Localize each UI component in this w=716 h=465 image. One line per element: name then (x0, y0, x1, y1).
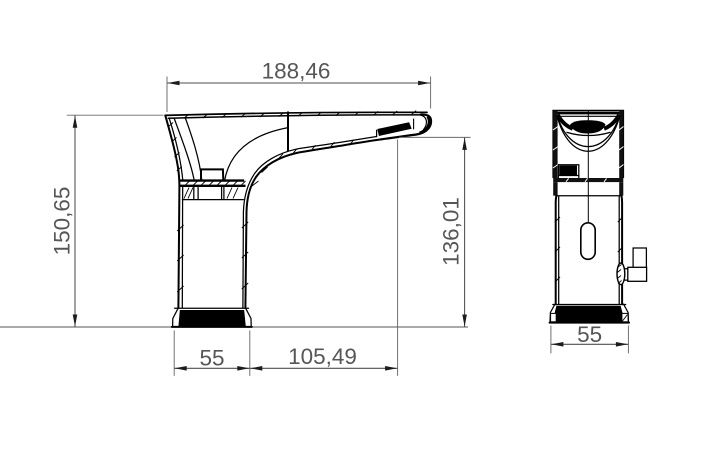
svg-text:188,46: 188,46 (262, 59, 331, 84)
svg-text:55: 55 (199, 346, 224, 371)
svg-text:150,65: 150,65 (50, 187, 75, 256)
svg-text:136,01: 136,01 (439, 197, 464, 266)
svg-text:105,49: 105,49 (288, 344, 357, 369)
svg-text:55: 55 (577, 322, 602, 347)
